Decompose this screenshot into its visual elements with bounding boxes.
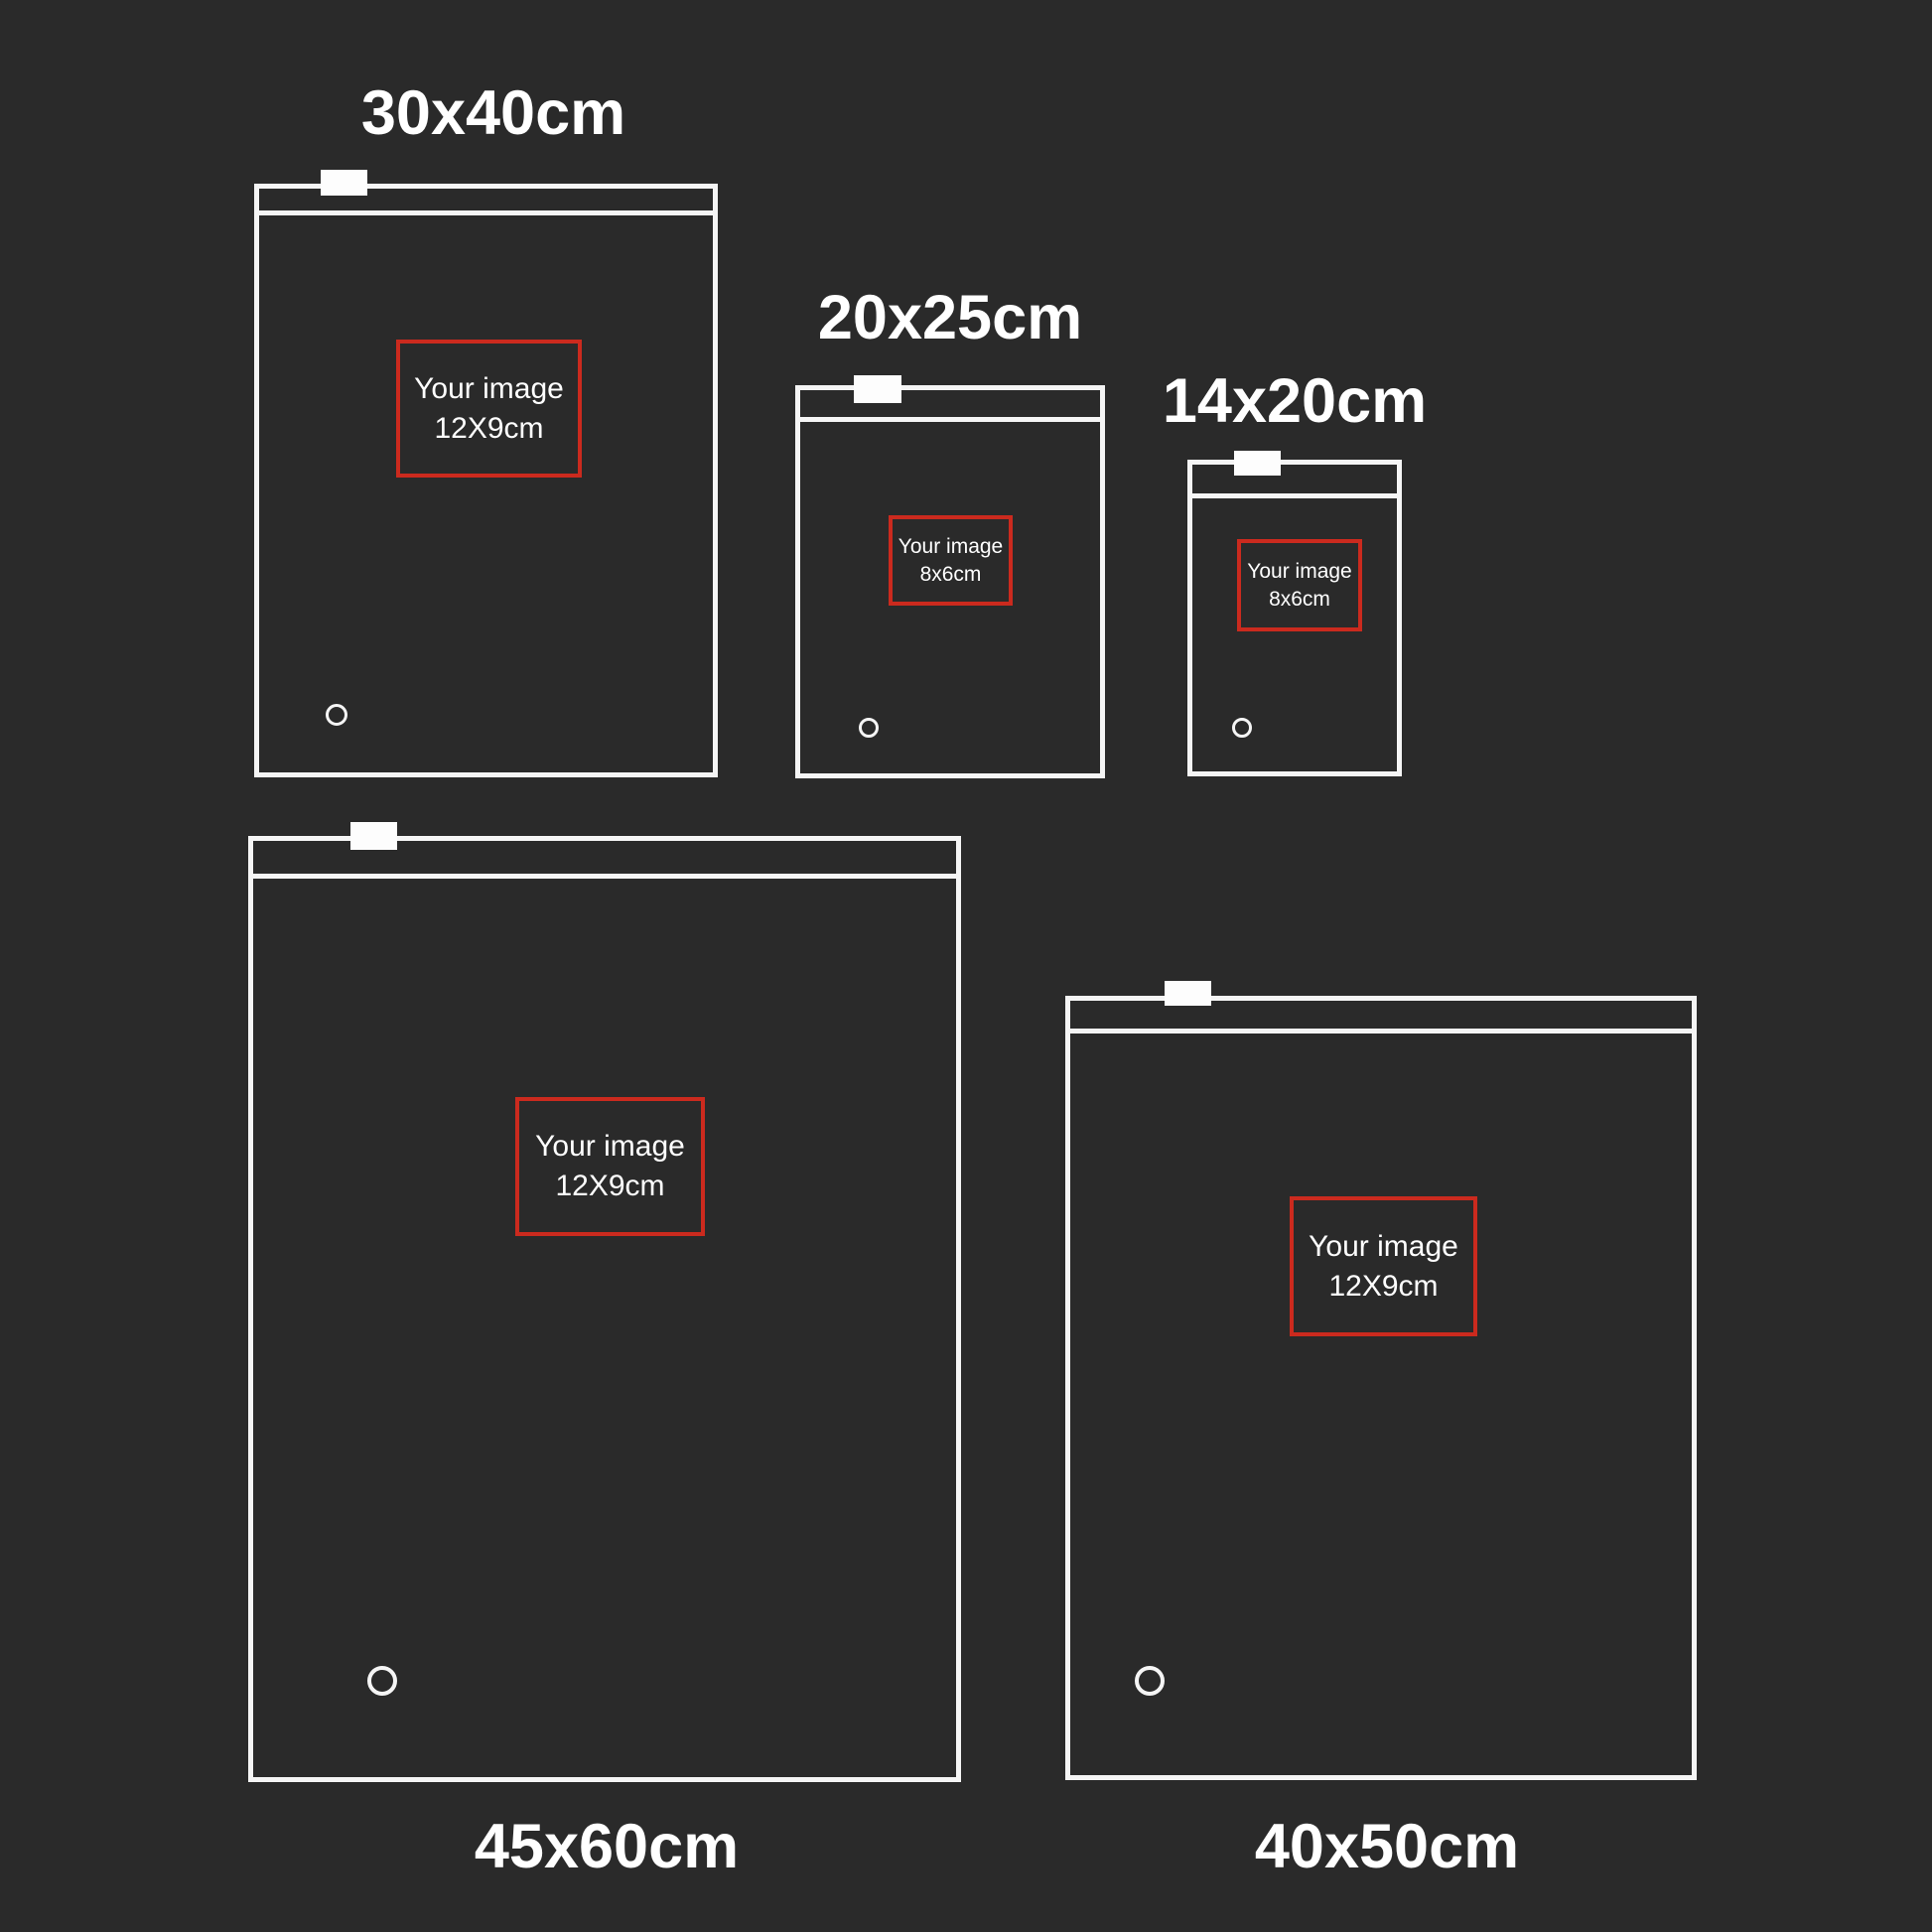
print-area-box: Your image 12X9cm bbox=[396, 340, 582, 478]
hang-hole-icon bbox=[1232, 718, 1252, 738]
print-area-text-line2: 8x6cm bbox=[1269, 586, 1330, 614]
print-area-text-line1: Your image bbox=[414, 369, 564, 409]
print-area-text-line1: Your image bbox=[898, 533, 1003, 561]
print-area-box: Your image 8x6cm bbox=[889, 515, 1013, 606]
bag-size-label: 20x25cm bbox=[702, 285, 1198, 350]
bag-size-label: 30x40cm bbox=[245, 80, 742, 146]
bag-outline: Your image 8x6cm bbox=[1187, 460, 1402, 776]
print-area-text-line1: Your image bbox=[1309, 1227, 1458, 1267]
hang-hole-icon bbox=[859, 718, 879, 738]
zipper-slider-tab bbox=[350, 822, 397, 850]
bag-outline: Your image 12X9cm bbox=[248, 836, 961, 1782]
zipper-slider-tab bbox=[854, 375, 901, 403]
hang-hole-icon bbox=[326, 704, 347, 726]
zipper-seam-line bbox=[253, 874, 956, 879]
bag-size-label: 14x20cm bbox=[1046, 368, 1543, 434]
print-area-text-line1: Your image bbox=[1247, 558, 1351, 586]
zipper-seam-line bbox=[1070, 1029, 1692, 1034]
print-area-text-line2: 12X9cm bbox=[1328, 1267, 1438, 1307]
zipper-slider-tab bbox=[1234, 451, 1281, 476]
print-area-box: Your image 12X9cm bbox=[1290, 1196, 1477, 1336]
print-area-text-line2: 12X9cm bbox=[434, 409, 543, 449]
zipper-seam-line bbox=[259, 210, 713, 215]
product-size-diagram: 30x40cm Your image 12X9cm 20x25cm Your i… bbox=[0, 0, 1932, 1932]
print-area-text-line1: Your image bbox=[535, 1127, 685, 1167]
hang-hole-icon bbox=[1135, 1666, 1165, 1696]
zipper-seam-line bbox=[1192, 493, 1397, 498]
zipper-slider-tab bbox=[321, 170, 367, 196]
hang-hole-icon bbox=[367, 1666, 397, 1696]
bag-size-label: 45x60cm bbox=[358, 1814, 855, 1879]
bag-outline: Your image 12X9cm bbox=[1065, 996, 1697, 1780]
print-area-box: Your image 12X9cm bbox=[515, 1097, 705, 1236]
bag-size-label: 40x50cm bbox=[1139, 1814, 1635, 1879]
print-area-text-line2: 12X9cm bbox=[555, 1167, 664, 1206]
bag-outline: Your image 8x6cm bbox=[795, 385, 1105, 778]
bag-outline: Your image 12X9cm bbox=[254, 184, 718, 777]
zipper-slider-tab bbox=[1165, 981, 1211, 1006]
print-area-box: Your image 8x6cm bbox=[1237, 539, 1362, 631]
print-area-text-line2: 8x6cm bbox=[920, 561, 982, 589]
